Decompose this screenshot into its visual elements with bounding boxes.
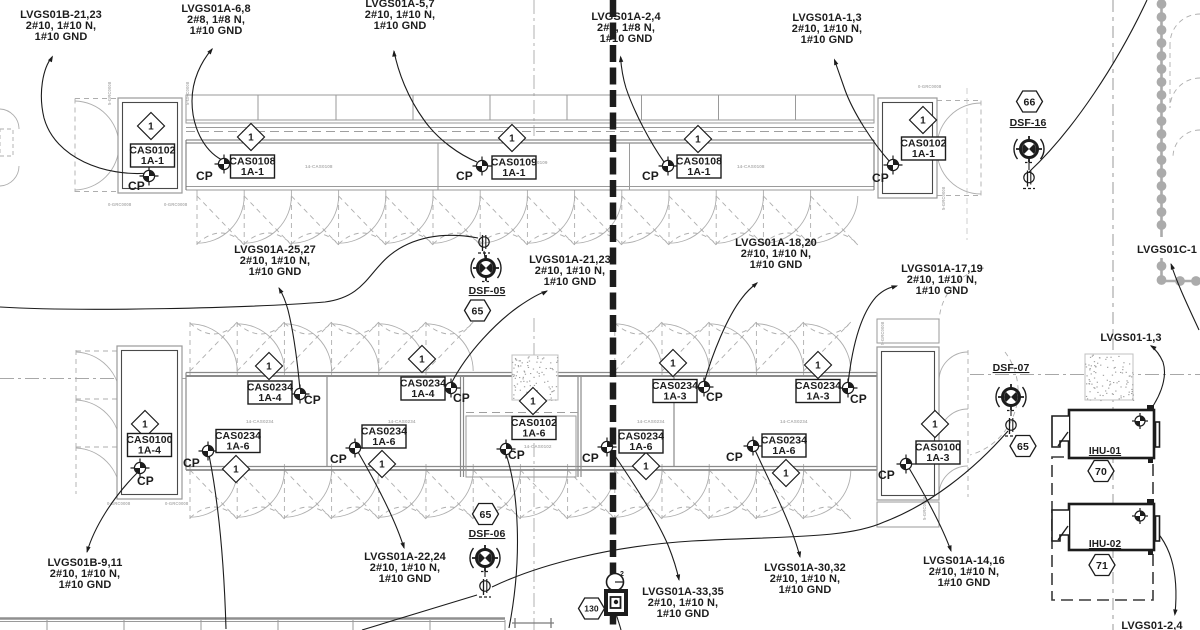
svg-text:CP: CP xyxy=(128,179,145,193)
svg-text:CP: CP xyxy=(582,451,599,465)
svg-text:1#10 GND: 1#10 GND xyxy=(59,579,112,591)
svg-text:IHU-02: IHU-02 xyxy=(1089,539,1122,550)
svg-text:2: 2 xyxy=(620,571,624,578)
svg-text:0-GRC0008: 0-GRC0008 xyxy=(164,202,188,207)
svg-text:1A-4: 1A-4 xyxy=(258,392,281,404)
svg-text:CP: CP xyxy=(330,452,347,466)
svg-text:1: 1 xyxy=(920,116,926,127)
svg-text:DSF-16: DSF-16 xyxy=(1010,117,1047,129)
svg-text:5-GRC0008: 5-GRC0008 xyxy=(185,81,190,105)
svg-text:1A-6: 1A-6 xyxy=(226,440,249,452)
svg-text:1: 1 xyxy=(783,469,789,480)
svg-text:1: 1 xyxy=(248,133,254,144)
svg-text:1: 1 xyxy=(932,420,938,431)
svg-text:1: 1 xyxy=(148,122,154,133)
svg-text:0-GRC0008: 0-GRC0008 xyxy=(108,202,132,207)
svg-text:1#10 GND: 1#10 GND xyxy=(801,34,854,46)
svg-text:1: 1 xyxy=(379,460,385,471)
svg-text:65: 65 xyxy=(480,509,492,521)
svg-text:DSF-05: DSF-05 xyxy=(469,285,506,297)
svg-text:1#10 GND: 1#10 GND xyxy=(379,573,432,585)
svg-text:14-CAS0234: 14-CAS0234 xyxy=(780,419,808,424)
svg-text:1A-4: 1A-4 xyxy=(138,444,161,456)
svg-text:66: 66 xyxy=(1024,96,1036,108)
svg-text:130: 130 xyxy=(584,604,599,614)
svg-text:1: 1 xyxy=(643,462,649,473)
svg-text:CP: CP xyxy=(642,169,659,183)
svg-text:1: 1 xyxy=(670,359,676,370)
svg-text:1#10 GND: 1#10 GND xyxy=(938,577,991,589)
svg-text:CP: CP xyxy=(304,393,321,407)
svg-text:LVGS01C-1: LVGS01C-1 xyxy=(1137,244,1197,256)
svg-text:1: 1 xyxy=(419,355,425,366)
svg-text:14-CAS0108: 14-CAS0108 xyxy=(305,164,333,169)
svg-text:CP: CP xyxy=(878,468,895,482)
svg-text:1A-4: 1A-4 xyxy=(411,388,434,400)
svg-text:1#10 GND: 1#10 GND xyxy=(249,266,302,278)
svg-text:DSF-07: DSF-07 xyxy=(993,362,1030,374)
svg-text:1#10 GND: 1#10 GND xyxy=(750,259,803,271)
svg-text:CP: CP xyxy=(137,474,154,488)
svg-text:1#10 GND: 1#10 GND xyxy=(374,20,427,32)
svg-text:5-GRC0008: 5-GRC0008 xyxy=(107,81,112,105)
svg-text:1#10 GND: 1#10 GND xyxy=(35,31,88,43)
svg-text:1A-1: 1A-1 xyxy=(687,166,710,178)
svg-text:CP: CP xyxy=(196,169,213,183)
svg-text:1A-6: 1A-6 xyxy=(372,436,395,448)
svg-text:CP: CP xyxy=(183,456,200,470)
svg-text:CP: CP xyxy=(706,390,723,404)
svg-text:1#10 GND: 1#10 GND xyxy=(916,285,969,297)
svg-text:CP: CP xyxy=(456,169,473,183)
svg-text:CP: CP xyxy=(872,171,889,185)
svg-text:1#10 GND: 1#10 GND xyxy=(600,33,653,45)
svg-text:5-GRC0008: 5-GRC0008 xyxy=(880,321,885,345)
svg-text:CP: CP xyxy=(508,448,525,462)
svg-text:14-CAS0108: 14-CAS0108 xyxy=(737,164,765,169)
svg-text:70: 70 xyxy=(1095,466,1107,478)
svg-text:0-GRC0008: 0-GRC0008 xyxy=(918,84,942,89)
svg-text:CP: CP xyxy=(453,391,470,405)
svg-text:14-CAS0102: 14-CAS0102 xyxy=(524,444,552,449)
svg-text:5-GRC0008: 5-GRC0008 xyxy=(941,186,946,210)
svg-text:LVGS01-1,3: LVGS01-1,3 xyxy=(1100,332,1161,344)
svg-text:1: 1 xyxy=(142,420,148,431)
svg-text:1#10 GND: 1#10 GND xyxy=(190,25,243,37)
svg-text:DSF-06: DSF-06 xyxy=(469,528,506,540)
svg-text:1A-6: 1A-6 xyxy=(522,427,545,439)
svg-text:1: 1 xyxy=(266,362,272,373)
svg-text:1#10 GND: 1#10 GND xyxy=(779,584,832,596)
svg-text:71: 71 xyxy=(1096,560,1108,572)
svg-text:14-CAS0234: 14-CAS0234 xyxy=(246,419,274,424)
svg-text:CP: CP xyxy=(726,450,743,464)
svg-text:14-CAS0234: 14-CAS0234 xyxy=(388,419,416,424)
svg-text:65: 65 xyxy=(472,305,484,317)
svg-text:1#10 GND: 1#10 GND xyxy=(544,276,597,288)
svg-text:1: 1 xyxy=(815,361,821,372)
svg-text:1: 1 xyxy=(509,134,515,145)
svg-text:CP: CP xyxy=(850,392,867,406)
svg-text:0-GRC0008: 0-GRC0008 xyxy=(165,501,189,506)
svg-text:1A-6: 1A-6 xyxy=(772,445,795,457)
svg-text:1: 1 xyxy=(695,135,701,146)
svg-text:LVGS01-2,4: LVGS01-2,4 xyxy=(1121,620,1183,630)
svg-text:1A-1: 1A-1 xyxy=(502,167,525,179)
svg-text:1A-3: 1A-3 xyxy=(926,452,949,464)
svg-text:65: 65 xyxy=(1017,441,1029,453)
svg-text:1: 1 xyxy=(530,397,536,408)
svg-text:1A-1: 1A-1 xyxy=(241,166,264,178)
svg-text:1A-1: 1A-1 xyxy=(141,155,164,167)
svg-text:1A-3: 1A-3 xyxy=(806,390,829,402)
svg-text:IHU-01: IHU-01 xyxy=(1089,446,1122,457)
svg-text:1A-6: 1A-6 xyxy=(629,441,652,453)
svg-text:1A-1: 1A-1 xyxy=(912,148,935,160)
svg-text:1: 1 xyxy=(233,465,239,476)
svg-text:1#10 GND: 1#10 GND xyxy=(657,608,710,620)
svg-text:14-CAS0234: 14-CAS0234 xyxy=(637,419,665,424)
svg-text:5-GRC0008: 5-GRC0008 xyxy=(922,496,927,520)
svg-text:1A-3: 1A-3 xyxy=(663,390,686,402)
